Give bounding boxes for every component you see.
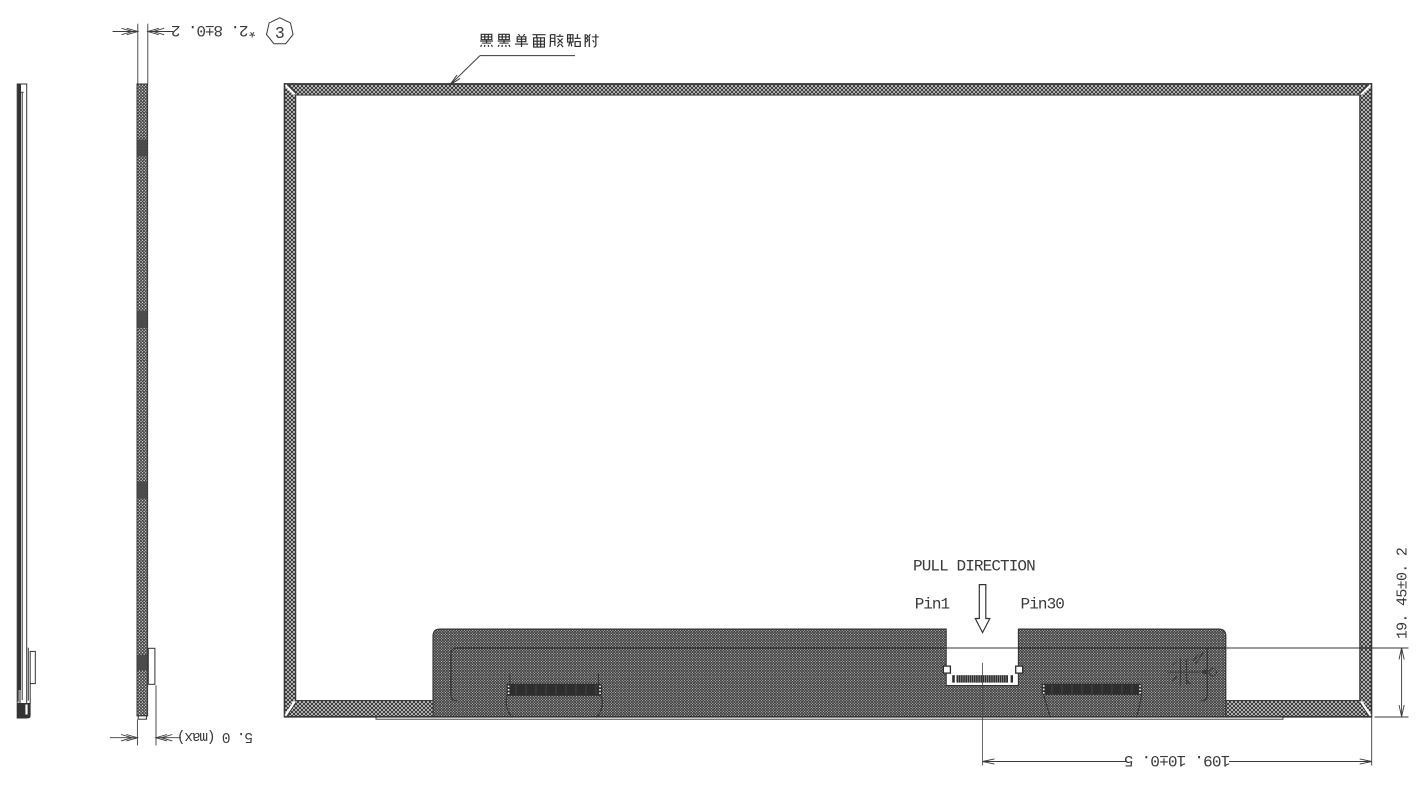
svg-text:PULL DIRECTION: PULL DIRECTION <box>913 558 1035 576</box>
svg-text:109. 10±0. 5: 109. 10±0. 5 <box>1124 751 1230 769</box>
svg-text:5. 0 (max): 5. 0 (max) <box>178 728 253 744</box>
svg-text:19. 45±0. 2: 19. 45±0. 2 <box>1394 548 1411 639</box>
svg-text:*2. 8±0. 2: *2. 8±0. 2 <box>172 21 258 39</box>
svg-text:Pin1: Pin1 <box>915 596 950 614</box>
svg-text:3: 3 <box>275 24 285 43</box>
svg-text:Pin30: Pin30 <box>1021 596 1065 614</box>
